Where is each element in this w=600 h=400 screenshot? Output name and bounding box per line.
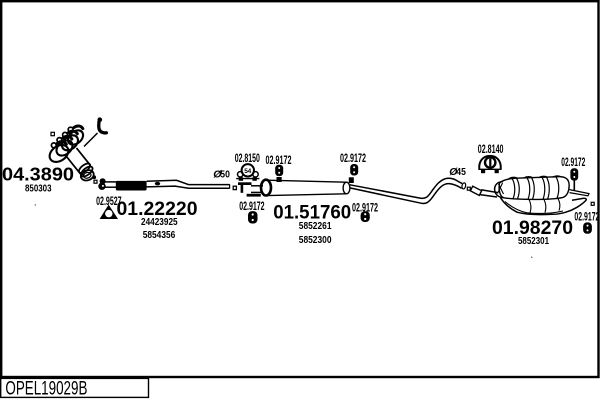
svg-text:45: 45	[456, 166, 466, 178]
svg-text:5852261: 5852261	[299, 221, 332, 232]
svg-text:02.9172: 02.9172	[266, 155, 292, 167]
svg-text:OPEL19029B: OPEL19029B	[5, 379, 87, 400]
svg-text:02.9172: 02.9172	[574, 212, 599, 224]
svg-text:54: 54	[244, 168, 251, 175]
svg-text:02.8150: 02.8150	[235, 153, 260, 165]
svg-text:02.9172: 02.9172	[239, 201, 264, 213]
svg-text:02.9172: 02.9172	[340, 153, 366, 165]
svg-text:5852300: 5852300	[299, 235, 332, 246]
svg-text:02.9527: 02.9527	[96, 196, 122, 208]
svg-text:5852301: 5852301	[518, 236, 549, 247]
svg-text:02.8140: 02.8140	[478, 144, 504, 156]
svg-text:850303: 850303	[25, 184, 52, 195]
svg-text:24423925: 24423925	[141, 217, 178, 228]
svg-text:02.9172: 02.9172	[561, 157, 585, 169]
svg-text:04.3890: 04.3890	[2, 164, 74, 184]
svg-text:02.9172: 02.9172	[352, 202, 378, 214]
svg-text:50: 50	[220, 169, 230, 181]
svg-text:5854356: 5854356	[143, 230, 176, 241]
